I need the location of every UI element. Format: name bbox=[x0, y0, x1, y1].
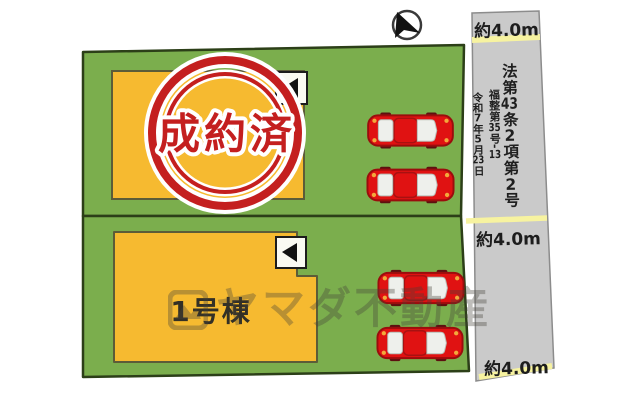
legal-note-date: 令和7年5月23日 bbox=[470, 92, 486, 176]
text-part: 令和 bbox=[471, 92, 483, 113]
road-width-label-top: 約4.0m bbox=[474, 15, 539, 42]
text-part: 43 bbox=[500, 96, 518, 112]
text-part: 年 bbox=[472, 123, 484, 134]
text-part: 2 bbox=[502, 176, 520, 192]
car-icon bbox=[377, 325, 462, 361]
text-part: 23 bbox=[472, 155, 484, 166]
road-highlight-middle bbox=[466, 218, 547, 221]
north-arrow-icon bbox=[393, 11, 421, 39]
text-part: 35 bbox=[488, 122, 501, 133]
legal-note-reference: 福整第35号-13 bbox=[485, 89, 502, 160]
site-plan-diagram: 成約済 約4.0m 約4.0m 約4.0m 法第43条2項第2号 福整第35号-… bbox=[0, 0, 640, 417]
car-icon bbox=[367, 167, 453, 204]
text-part: 月 bbox=[472, 144, 484, 155]
text-part: 条 bbox=[501, 111, 519, 128]
text-part: 2 bbox=[501, 128, 519, 144]
sold-stamp-text: 成約済 bbox=[158, 110, 296, 159]
building-2-label: 1号棟 bbox=[141, 290, 281, 330]
text-part: 福整第 bbox=[487, 89, 501, 122]
car-icon bbox=[368, 112, 453, 148]
road-width-label-middle: 約4.0m bbox=[476, 224, 541, 251]
car-icon bbox=[378, 270, 463, 306]
text-part: 号- bbox=[488, 133, 501, 149]
text-part: 日 bbox=[473, 165, 485, 176]
building-2-entrance bbox=[276, 237, 306, 268]
text-part: 法第 bbox=[500, 63, 519, 96]
text-part: 項第 bbox=[501, 143, 520, 176]
text-part: 13 bbox=[488, 148, 501, 159]
text-part: 号 bbox=[502, 192, 520, 209]
road-width-label-bottom: 約4.0m bbox=[484, 353, 549, 380]
text-part: 5 bbox=[472, 134, 484, 145]
text-part: 7 bbox=[472, 113, 484, 124]
